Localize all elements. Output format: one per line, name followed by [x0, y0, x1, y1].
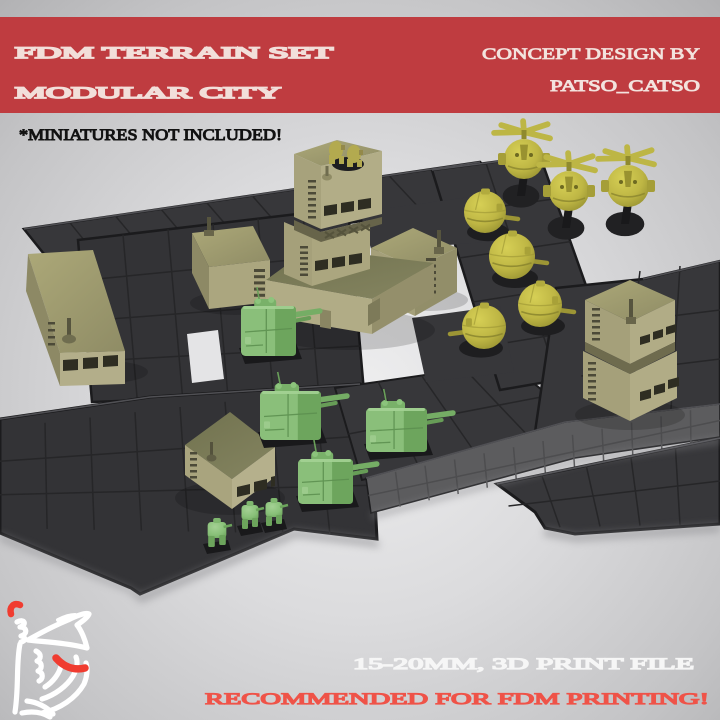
svg-text:15-20MM, 3D PRINT FILE: 15-20MM, 3D PRINT FILE	[353, 656, 694, 673]
svg-text:MODULAR CITY: MODULAR CITY	[15, 85, 282, 102]
svg-text:CONCEPT DESIGN BY: CONCEPT DESIGN BY	[482, 46, 701, 63]
svg-text:*MINIATURES NOT INCLUDED!: *MINIATURES NOT INCLUDED!	[19, 127, 282, 144]
svg-text:PATSO_CATSO: PATSO_CATSO	[550, 78, 700, 95]
svg-text:RECOMMENDED FOR FDM PRINTING!: RECOMMENDED FOR FDM PRINTING!	[205, 691, 709, 708]
svg-text:FDM TERRAIN SET: FDM TERRAIN SET	[15, 45, 333, 62]
